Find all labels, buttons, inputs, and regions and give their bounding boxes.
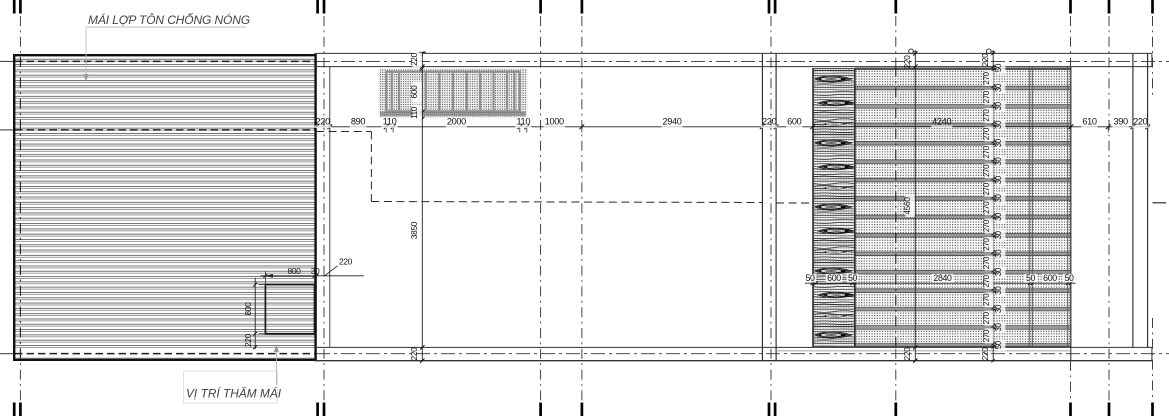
svg-text:30: 30 [994, 212, 1003, 221]
svg-text:270: 270 [982, 274, 991, 287]
svg-text:220: 220 [410, 52, 419, 65]
svg-text:110: 110 [410, 106, 419, 119]
svg-text:50: 50 [848, 273, 858, 283]
svg-text:270: 270 [982, 293, 991, 306]
svg-text:30: 30 [994, 120, 1003, 129]
svg-text:4240: 4240 [932, 117, 951, 127]
svg-text:220: 220 [902, 55, 912, 69]
svg-text:50: 50 [994, 340, 1003, 349]
svg-text:270: 270 [982, 329, 991, 342]
svg-text:390: 390 [1113, 117, 1128, 127]
svg-text:30: 30 [994, 157, 1003, 166]
svg-text:890: 890 [351, 117, 366, 127]
svg-text:800: 800 [288, 266, 302, 276]
svg-text:30: 30 [994, 286, 1003, 295]
svg-text:30: 30 [994, 83, 1003, 92]
svg-text:600: 600 [1043, 273, 1057, 283]
svg-text:2000: 2000 [447, 117, 466, 127]
svg-text:270: 270 [982, 145, 991, 158]
svg-text:110: 110 [383, 117, 397, 127]
svg-text:30: 30 [994, 194, 1003, 203]
svg-text:30: 30 [994, 249, 1003, 258]
svg-text:220: 220 [762, 117, 777, 127]
svg-text:220: 220 [980, 347, 990, 361]
svg-text:30: 30 [994, 304, 1003, 313]
svg-text:610: 610 [1082, 117, 1097, 127]
svg-text:3850: 3850 [409, 221, 419, 239]
svg-text:1000: 1000 [545, 117, 564, 127]
svg-text:270: 270 [982, 201, 991, 214]
svg-text:220: 220 [316, 117, 331, 127]
svg-text:270: 270 [982, 219, 991, 232]
svg-text:270: 270 [982, 311, 991, 324]
svg-text:270: 270 [982, 71, 991, 84]
svg-text:50: 50 [994, 63, 1003, 72]
svg-text:50: 50 [1026, 273, 1036, 283]
svg-text:2940: 2940 [662, 117, 681, 127]
svg-text:30: 30 [994, 175, 1003, 184]
svg-text:270: 270 [982, 182, 991, 195]
svg-text:220: 220 [902, 347, 912, 361]
svg-text:VỊ TRÍ THĂM MÁI: VỊ TRÍ THĂM MÁI [186, 387, 282, 401]
svg-text:220: 220 [409, 347, 419, 361]
svg-text:220: 220 [980, 53, 990, 67]
svg-text:30: 30 [994, 138, 1003, 147]
svg-text:30: 30 [994, 322, 1003, 331]
svg-text:MÁI LỢP TÔN CHỐNG NÓNG: MÁI LỢP TÔN CHỐNG NÓNG [88, 12, 250, 27]
svg-text:270: 270 [982, 109, 991, 122]
svg-text:30: 30 [311, 266, 320, 276]
svg-text:800: 800 [243, 302, 253, 316]
svg-text:2840: 2840 [933, 273, 952, 283]
svg-text:270: 270 [982, 238, 991, 251]
svg-text:220: 220 [1133, 117, 1148, 127]
svg-text:600: 600 [787, 117, 802, 127]
svg-text:30: 30 [994, 101, 1003, 110]
svg-text:270: 270 [982, 164, 991, 177]
svg-text:50: 50 [805, 273, 815, 283]
svg-text:270: 270 [982, 256, 991, 269]
svg-text:270: 270 [982, 90, 991, 103]
svg-text:600: 600 [410, 85, 419, 98]
svg-text:110: 110 [516, 117, 530, 127]
svg-text:600: 600 [827, 273, 841, 283]
svg-text:30: 30 [994, 267, 1003, 276]
svg-text:270: 270 [982, 127, 991, 140]
svg-text:30: 30 [994, 230, 1003, 239]
svg-text:50: 50 [1064, 273, 1074, 283]
svg-text:220: 220 [339, 257, 353, 267]
svg-text:220: 220 [243, 333, 253, 347]
svg-text:4560: 4560 [902, 197, 912, 215]
